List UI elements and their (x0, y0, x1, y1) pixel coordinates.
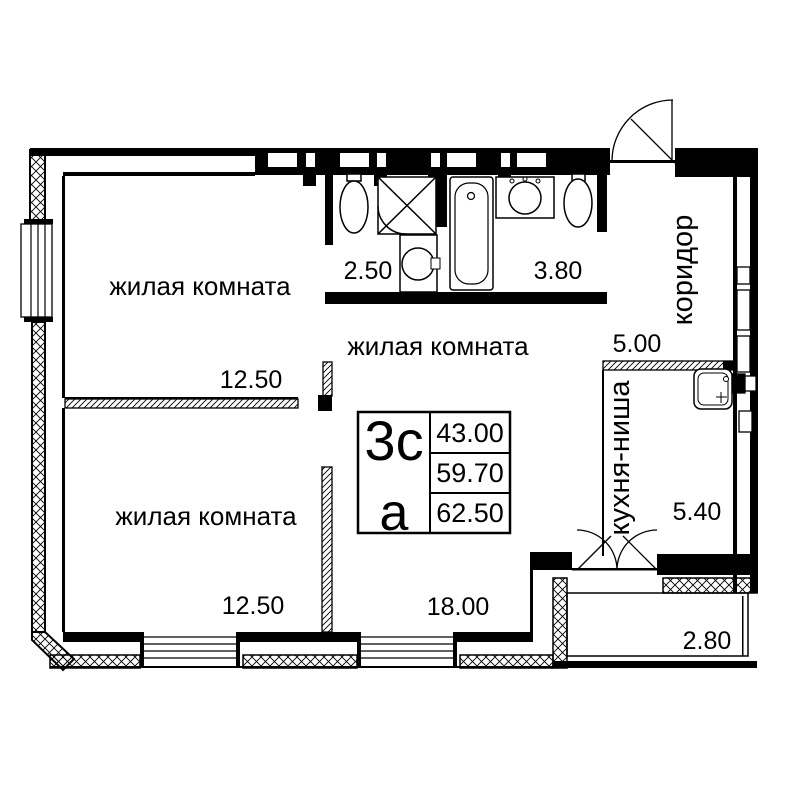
stamp-table: 3с а 43.00 59.70 62.50 (358, 409, 510, 542)
living-top-area: 12.50 (220, 366, 283, 394)
bath-small-area: 2.50 (344, 257, 393, 285)
bathtub-icon (450, 177, 493, 290)
apartment-type-label: 3с (364, 409, 423, 472)
living-bottom-area: 12.50 (222, 592, 285, 620)
living-top-label: жилая комната (109, 271, 291, 301)
corridor-label: коридор (667, 215, 699, 326)
stamp-value-2: 59.70 (436, 458, 504, 488)
living-bottom-label: жилая комната (115, 501, 297, 531)
floor-plan-page: 3с а 43.00 59.70 62.50 жилая комната 12.… (0, 0, 800, 800)
floor-plan-drawing: 3с а 43.00 59.70 62.50 жилая комната 12.… (0, 0, 800, 800)
sink-icon (400, 235, 440, 292)
kitchen-label: кухня-ниша (604, 380, 636, 536)
kitchen-sink-icon (694, 369, 732, 409)
living-center-label: жилая комната (347, 331, 529, 361)
corridor-area: 5.00 (613, 330, 662, 358)
shower-icon (378, 177, 436, 234)
kitchen-area: 5.40 (673, 498, 722, 526)
bath-large-area: 3.80 (534, 257, 583, 285)
left-window (21, 219, 53, 322)
balcony-area: 2.80 (683, 627, 732, 655)
stamp-value-3: 62.50 (436, 498, 504, 528)
apartment-variant-label: а (380, 484, 409, 542)
living-center-area: 18.00 (427, 593, 490, 621)
stamp-value-1: 43.00 (436, 418, 504, 448)
vanity-sink-icon (496, 177, 554, 218)
